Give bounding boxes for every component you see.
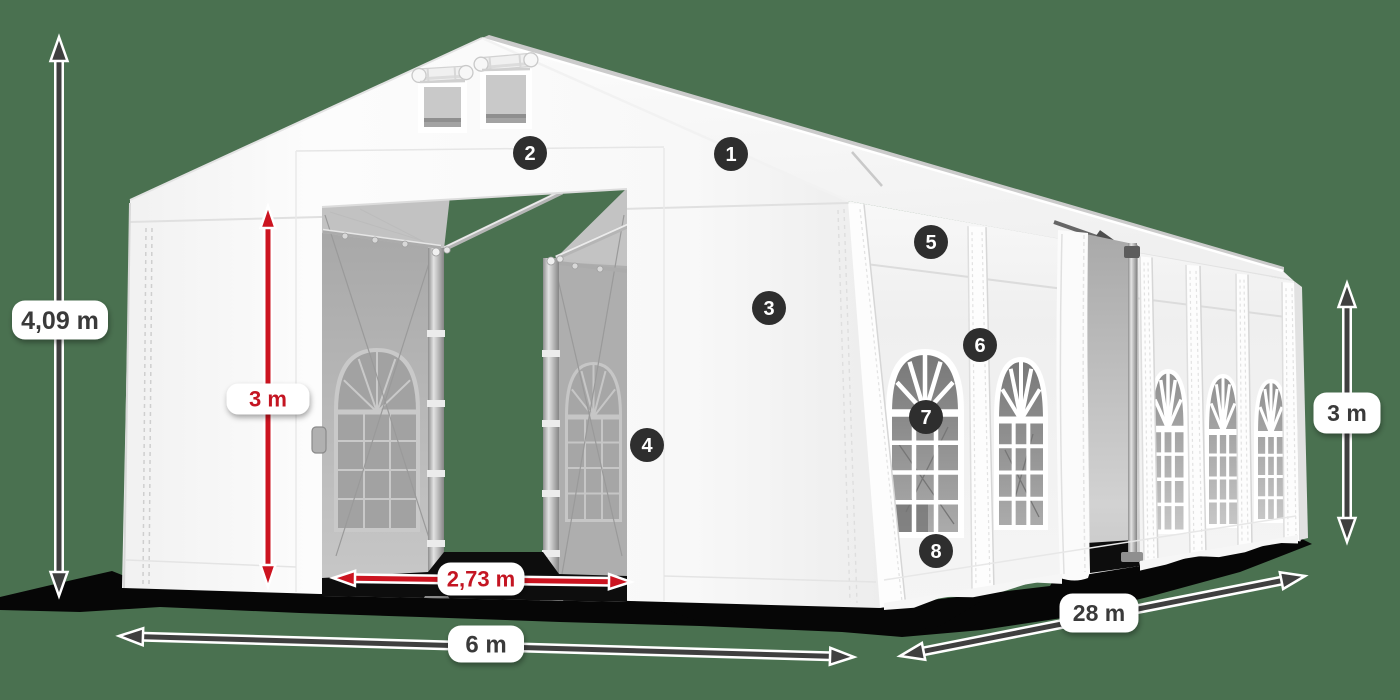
svg-text:28 m: 28 m (1073, 600, 1125, 626)
svg-text:4: 4 (641, 435, 653, 457)
svg-text:3: 3 (763, 298, 774, 320)
svg-text:5: 5 (925, 232, 936, 254)
svg-text:8: 8 (930, 541, 941, 563)
svg-text:2,73 m: 2,73 m (447, 567, 516, 592)
svg-text:1: 1 (725, 144, 736, 166)
svg-text:3 m: 3 m (1327, 400, 1367, 426)
svg-text:7: 7 (920, 407, 931, 429)
svg-text:2: 2 (524, 143, 535, 165)
svg-text:6: 6 (974, 335, 985, 357)
svg-text:6 m: 6 m (465, 631, 506, 658)
svg-text:4,09 m: 4,09 m (21, 307, 99, 335)
svg-text:3 m: 3 m (249, 387, 287, 412)
